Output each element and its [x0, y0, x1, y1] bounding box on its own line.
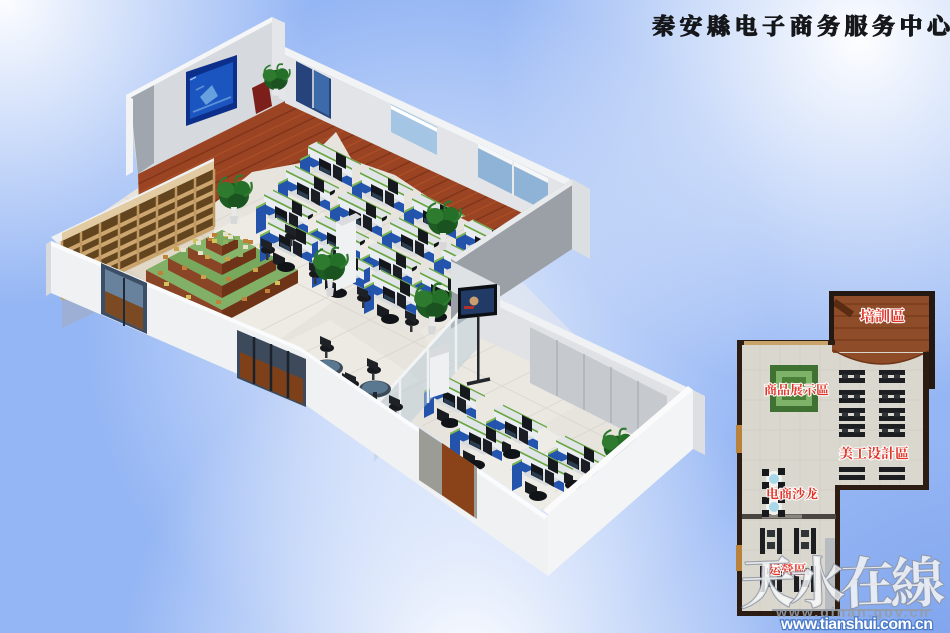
svg-text:www.tianshui.com.cn: www.tianshui.com.cn: [780, 616, 933, 633]
